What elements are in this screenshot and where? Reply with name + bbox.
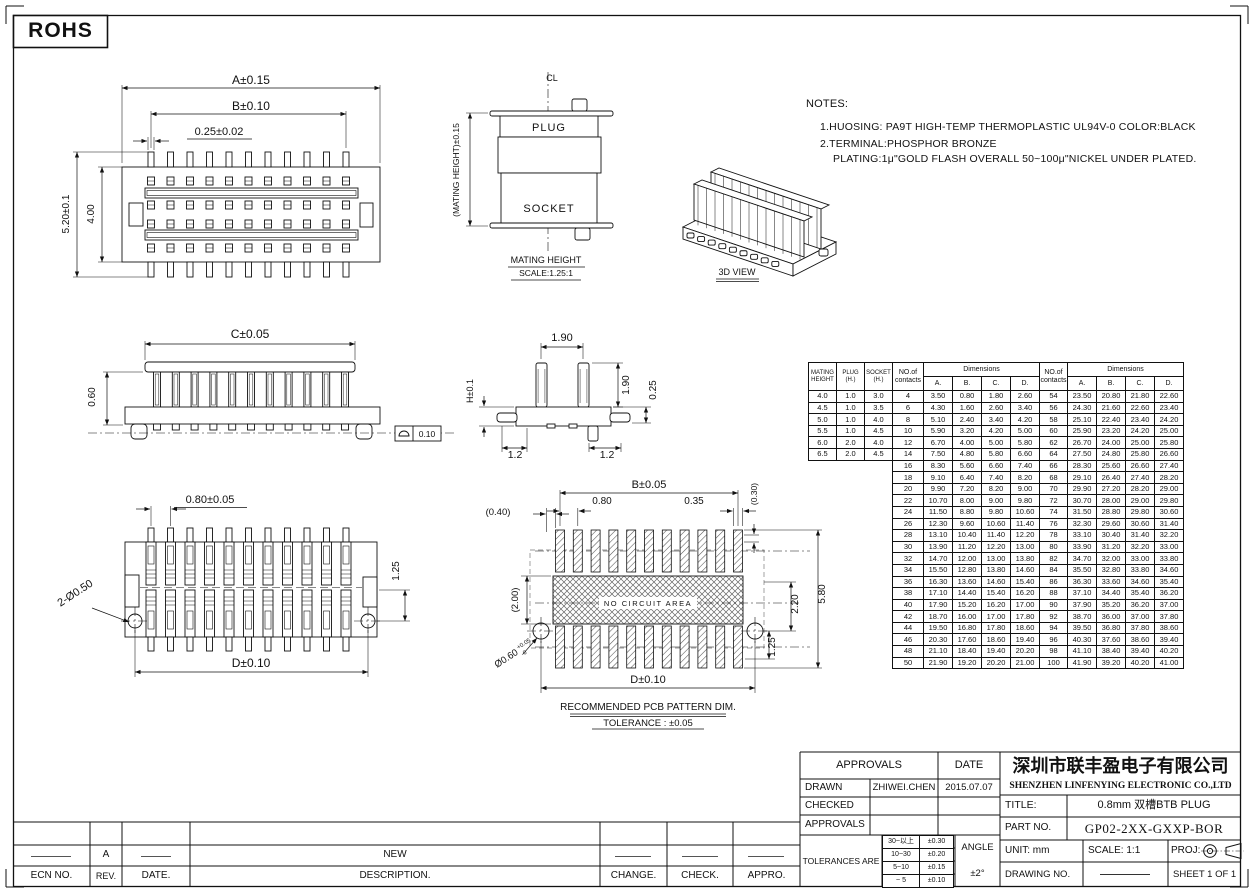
- company-name-cn: 深圳市联丰盈电子有限公司: [1000, 752, 1241, 780]
- drawn-label: DRAWN: [800, 779, 875, 797]
- table-row: 4.51.03.5: [809, 402, 893, 414]
- table-row: ~ 5±0.10: [883, 874, 954, 887]
- pcb-dim-035: 0.35: [684, 496, 704, 507]
- pcb-hole-dim: Ø0.60 +0.05 -0: [493, 637, 537, 673]
- angle-value: ±2°: [955, 861, 1000, 887]
- check-label: CHECK.: [667, 866, 733, 887]
- dim-520: 5.20±0.1: [61, 194, 72, 233]
- pcb-dim-030: (0.30): [749, 483, 759, 505]
- table-row: 85.102.403.404.205825.1022.4023.4024.20: [893, 414, 1184, 426]
- pcb-dim-200: (2.00): [510, 588, 521, 613]
- table-row: 2813.1010.4011.4012.207833.1030.4031.403…: [893, 530, 1184, 542]
- plug-label: PLUG: [532, 122, 566, 134]
- dim-12-left: 1.2: [508, 449, 523, 461]
- table-row: 5~10±0.15: [883, 861, 954, 874]
- dim-d-bottom: D±0.10: [232, 656, 271, 670]
- dim-125-bottom: 1.25: [391, 561, 402, 581]
- table-row: 2210.708.009.009.807230.7028.0029.0029.8…: [893, 495, 1184, 507]
- table-row: 5.51.04.5: [809, 425, 893, 437]
- table-row: 168.305.606.607.406628.3025.6026.6027.40: [893, 460, 1184, 472]
- approvals-header: APPROVALS: [800, 752, 938, 779]
- table-row: 189.106.407.408.206829.1026.4027.4028.20: [893, 472, 1184, 484]
- no-circuit-area-label: NO CIRCUIT AREA: [604, 599, 692, 608]
- table-row: 4419.5016.8017.8018.609439.5036.8037.803…: [893, 622, 1184, 634]
- note-terminal: 2.TERMINAL:PHOSPHOR BRONZE: [820, 138, 997, 150]
- change-blank: [615, 856, 651, 857]
- table-row: 64.301.602.603.405624.3021.6022.6023.40: [893, 402, 1184, 414]
- proj-label: PROJ:: [1171, 846, 1200, 857]
- approvals-label: APPROVALS: [800, 815, 875, 835]
- col-b1: B.: [953, 377, 982, 391]
- date-label: DATE.: [122, 866, 190, 887]
- drawing-sheet: A±0.15 B±0.10 0.25±0.02 5.20±0.1 4.00 CL…: [0, 0, 1254, 895]
- dim-h: H±0.1: [465, 379, 475, 403]
- contacts-dimension-table: NO.of contacts Dimensions NO.of contacts…: [892, 362, 1184, 669]
- ecn-no-label: ECN NO.: [13, 866, 90, 887]
- spec-col-mating: MATING HEIGHT: [809, 363, 837, 391]
- table-row: 4.01.03.0: [809, 391, 893, 403]
- pcb-hole-dia: Ø0.60: [493, 647, 521, 670]
- dim-025: 0.25: [648, 380, 659, 400]
- pcb-hole-tol-dn: -0: [520, 649, 528, 657]
- pcb-tolerance-label: TOLERANCE : ±0.05: [603, 718, 693, 729]
- date-header: DATE: [938, 752, 1000, 779]
- appro-label: APPRO.: [733, 866, 800, 887]
- dim-b: B±0.10: [232, 99, 270, 113]
- pcb-dim-220: 2.20: [790, 594, 801, 614]
- table-row: 2411.508.809.8010.607431.5028.8029.8030.…: [893, 506, 1184, 518]
- title-value: 0.8mm 双槽BTB PLUG: [1067, 795, 1241, 817]
- pcb-dim-b: B±0.05: [632, 479, 667, 491]
- table-row: 3616.3013.6014.6015.408636.3033.6034.603…: [893, 576, 1184, 588]
- drawn-date: 2015.07.07: [938, 779, 1000, 797]
- part-no-value: GP02-2XX-GXXP-BOR: [1067, 817, 1241, 840]
- table-row: 2612.309.6010.6011.407632.3029.6030.6031…: [893, 518, 1184, 530]
- drawn-by: ZHIWEI.CHEN: [870, 779, 938, 797]
- col-b2: B.: [1097, 377, 1126, 391]
- notes-title: NOTES:: [806, 98, 848, 110]
- table-row: 5021.9019.2020.2021.0010041.9039.2040.20…: [893, 657, 1184, 669]
- table-row: 43.500.801.802.605423.5020.8021.8022.60: [893, 391, 1184, 403]
- table-row: 4017.9015.2016.2017.009037.9035.2036.203…: [893, 599, 1184, 611]
- dims-header-2: Dimensions: [1068, 363, 1184, 377]
- table-row: 6.52.04.5: [809, 448, 893, 460]
- part-no-label: PART NO.: [1000, 817, 1072, 840]
- col-a2: A.: [1068, 377, 1097, 391]
- table-row: 4821.1018.4019.4020.209841.1038.4039.404…: [893, 646, 1184, 658]
- description-value: NEW: [190, 845, 600, 866]
- dim-190-top: 1.90: [551, 332, 572, 344]
- date-blank: [141, 856, 171, 857]
- pcb-pattern-label: RECOMMENDED PCB PATTERN DIM.: [560, 702, 736, 713]
- table-row: 4218.7016.0017.0017.809238.7036.0037.003…: [893, 611, 1184, 623]
- tolerances-label: TOLERANCES ARE: [800, 835, 882, 887]
- projection-cell: PROJ:: [1168, 840, 1244, 862]
- dim-12-right: 1.2: [600, 449, 615, 461]
- rev-label: REV.: [90, 866, 122, 887]
- pcb-dim-040: (0.40): [486, 507, 511, 518]
- change-label: CHANGE.: [600, 866, 667, 887]
- table-row: 4620.3017.6018.6019.409640.3037.6038.603…: [893, 634, 1184, 646]
- note-housing: 1.HUOSING: PA9T HIGH-TEMP THERMOPLASTIC …: [820, 121, 1196, 133]
- dims-header-1: Dimensions: [924, 363, 1040, 377]
- checked-label: CHECKED: [800, 797, 875, 815]
- col-d2: D.: [1155, 377, 1184, 391]
- table-row: 3817.1014.4015.4016.208837.1034.4035.403…: [893, 588, 1184, 600]
- table-row: 147.504.805.806.606427.5024.8025.8026.60: [893, 448, 1184, 460]
- angle-label: ANGLE: [955, 835, 1000, 861]
- description-label: DESCRIPTION.: [190, 866, 600, 887]
- mating-scale-label: SCALE:1.25:1: [519, 268, 573, 278]
- 3d-view-label: 3D VIEW: [718, 267, 756, 277]
- contacts-header-1: NO.of contacts: [893, 363, 924, 391]
- table-row: 3214.7012.0013.0013.808234.7032.0033.003…: [893, 553, 1184, 565]
- col-c1: C.: [982, 377, 1011, 391]
- drawing-no-label: DRAWING NO.: [1000, 862, 1088, 887]
- table-row: 30~以上±0.30: [883, 836, 954, 849]
- ecn-blank: [31, 856, 71, 857]
- flatness-value: 0.10: [419, 429, 436, 439]
- company-name-en: SHENZHEN LINFENYING ELECTRONIC CO.,LTD: [1000, 779, 1241, 795]
- spec-col-socket: SOCKET (H.): [865, 363, 893, 391]
- tolerance-table: 30~以上±0.3010~30±0.205~10±0.15~ 5±0.10: [882, 835, 954, 888]
- dim-c: C±0.05: [231, 327, 270, 341]
- table-row: 6.02.04.0: [809, 437, 893, 449]
- check-blank: [682, 856, 718, 857]
- col-d1: D.: [1011, 377, 1040, 391]
- dim-400: 4.00: [86, 204, 97, 224]
- dim-190-right: 1.90: [621, 375, 632, 395]
- note-plating: PLATING:1μ"GOLD FLASH OVERALL 50~100μ"NI…: [833, 153, 1196, 165]
- title-label: TITLE:: [1000, 795, 1072, 817]
- rohs-stamp: ROHS: [13, 15, 108, 48]
- table-row: 5.01.04.0: [809, 414, 893, 426]
- mating-height-dim: (MATING HEIGHT)±0.15: [451, 123, 461, 217]
- table-row: 209.907.208.209.007029.9027.2028.2029.00: [893, 483, 1184, 495]
- pcb-dim-580: 5.80: [817, 584, 828, 604]
- col-a1: A.: [924, 377, 953, 391]
- mating-height-table: MATING HEIGHT PLUG (H.) SOCKET (H.) 4.01…: [808, 362, 893, 461]
- table-row: 126.704.005.005.806226.7024.0025.0025.80: [893, 437, 1184, 449]
- dim-pitch: 0.80±0.05: [186, 494, 235, 506]
- pcb-dim-125: 1.25: [767, 637, 778, 657]
- appro-blank: [748, 856, 784, 857]
- scale-label: SCALE: 1:1: [1083, 840, 1173, 862]
- unit-label: UNIT: mm: [1000, 840, 1088, 862]
- dim-a: A±0.15: [232, 73, 270, 87]
- table-row: 3415.5012.8013.8014.608435.5032.8033.803…: [893, 564, 1184, 576]
- table-row: 105.903.204.205.006025.9023.2024.2025.00: [893, 425, 1184, 437]
- contacts-header-2: NO.of contacts: [1040, 363, 1068, 391]
- table-row: 10~30±0.20: [883, 848, 954, 861]
- drawing-no-blank: [1100, 874, 1150, 875]
- sheet-label: SHEET 1 OF 1: [1168, 862, 1246, 887]
- socket-label: SOCKET: [523, 203, 574, 215]
- pcb-dim-d: D±0.10: [630, 674, 665, 686]
- centerline-symbol: CL: [546, 73, 558, 83]
- mating-height-label: MATING HEIGHT: [511, 255, 582, 265]
- dim-pin-width: 0.25±0.02: [195, 126, 244, 138]
- col-c2: C.: [1126, 377, 1155, 391]
- first-angle-projection-icon: [1200, 842, 1244, 860]
- table-row: 3013.9011.2012.2013.008033.9031.2032.203…: [893, 541, 1184, 553]
- rev-value: A: [90, 845, 122, 866]
- dim-060: 0.60: [87, 387, 98, 407]
- dim-holes: 2-Ø0.50: [55, 578, 95, 610]
- spec-col-plug: PLUG (H.): [837, 363, 865, 391]
- pcb-dim-080: 0.80: [592, 496, 612, 507]
